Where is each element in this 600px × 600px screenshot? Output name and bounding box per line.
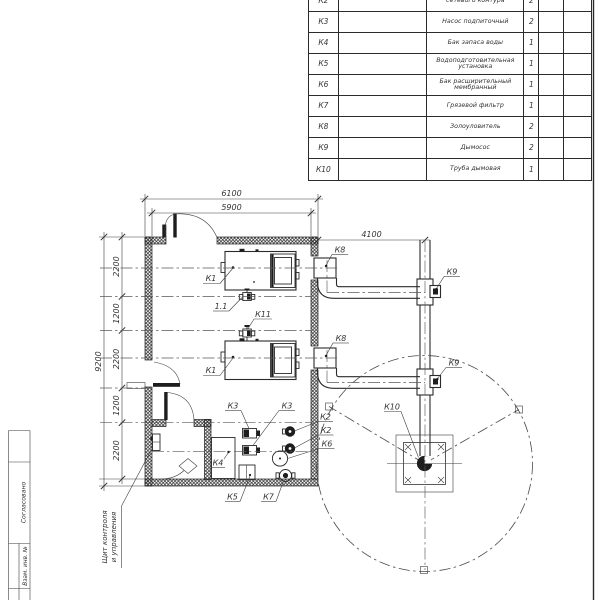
spec-qty: 2 — [524, 12, 539, 32]
spec-mass — [539, 138, 564, 158]
spec-pos: К7 — [309, 96, 339, 116]
label-k9-2: К9 — [449, 359, 460, 368]
spec-qty: 2 — [524, 0, 539, 11]
label-k6: К6 — [322, 440, 333, 449]
spec-pos: К4 — [309, 33, 339, 53]
dim-9200-text: 9200 — [94, 351, 103, 371]
label-k5: К5 — [227, 493, 238, 502]
chain-2200-a: 2200 — [112, 256, 121, 276]
spec-row-k8: К8 Золоуловитель 2 — [309, 117, 591, 138]
spec-pos: К6 — [309, 75, 339, 95]
label-k11: К11 — [255, 310, 271, 319]
spec-row-k7: К7 Грязевой фильтр 1 — [309, 96, 591, 117]
spec-pos: К2 — [309, 0, 339, 11]
spec-qty: 1 — [524, 33, 539, 53]
interior-door — [164, 392, 194, 420]
spec-mass — [539, 96, 564, 116]
spec-name: Водоподготовительная установка — [427, 54, 524, 74]
spec-qty: 1 — [524, 159, 539, 180]
label-valve-1-1: 1.1 — [215, 302, 228, 311]
spec-qty: 1 — [524, 54, 539, 74]
spec-note — [564, 0, 591, 11]
boiler-k1-1 — [221, 249, 299, 290]
spec-name: Дымосос — [427, 138, 524, 158]
spec-note — [564, 54, 591, 74]
spec-pos: К8 — [309, 117, 339, 137]
chain-2200-b: 2200 — [112, 349, 121, 369]
spec-name: Труба дымовая — [427, 159, 524, 180]
spec-note — [564, 138, 591, 158]
expansion-tank-k6 — [272, 451, 287, 466]
spec-pos: К3 — [309, 12, 339, 32]
spec-name: Насос подпиточный — [427, 12, 524, 32]
label-k9-1: К9 — [447, 268, 458, 277]
floor-drain — [161, 459, 197, 480]
spec-designation — [339, 0, 427, 11]
dim-top-outer: 6100 — [140, 189, 323, 236]
spec-name: Бак расширительный мембранный — [427, 75, 524, 95]
spec-name: Бак запаса воды — [427, 33, 524, 53]
spec-designation — [339, 12, 427, 32]
guy-anchor-3 — [421, 567, 428, 574]
spec-row-k10: К10 Труба дымовая 1 — [309, 159, 591, 180]
spec-row-k9: К9 Дымосос 2 — [309, 138, 591, 159]
spec-designation — [339, 75, 427, 95]
spec-pos: К9 — [309, 138, 339, 158]
spec-mass — [539, 117, 564, 137]
feed-pump-k3-1 — [243, 429, 261, 439]
engineering-drawing-sheet: Согласовано Взам. инв. № — [0, 0, 600, 600]
spec-mass — [539, 54, 564, 74]
stamp-agreed-text: Согласовано — [21, 482, 28, 524]
spec-designation — [339, 159, 427, 180]
spec-row-k2: К2 сетевого контура 2 — [309, 0, 591, 12]
spec-pos: К5 — [309, 54, 339, 74]
spec-mass — [539, 159, 564, 180]
spec-designation — [339, 96, 427, 116]
dim-flue-offset: 4100 — [315, 230, 430, 243]
dim-6100-text: 6100 — [221, 189, 241, 198]
smoke-exhauster-k9-1 — [430, 286, 441, 298]
chain-2200-c: 2200 — [112, 440, 121, 460]
spec-designation — [339, 54, 427, 74]
feed-pump-k3-2 — [243, 446, 261, 456]
spec-designation — [339, 138, 427, 158]
label-k10: К10 — [384, 403, 400, 412]
dim-4100-text: 4100 — [361, 230, 381, 239]
control-panel-callout: Щит контроля и управления — [101, 450, 152, 569]
label-k1-1: К1 — [206, 274, 217, 283]
spec-name: сетевого контура — [427, 0, 524, 11]
spec-name: Золоуловитель — [427, 117, 524, 137]
spec-qty: 2 — [524, 138, 539, 158]
spec-note — [564, 75, 591, 95]
exterior-step — [127, 383, 145, 389]
chain-1200-b: 1200 — [112, 395, 121, 415]
label-k4: К4 — [213, 459, 224, 468]
spec-note — [564, 159, 591, 180]
smoke-exhauster-k9-2 — [430, 376, 441, 388]
entrance-door-top — [162, 214, 217, 238]
spec-note — [564, 96, 591, 116]
spec-designation — [339, 33, 427, 53]
network-pump-k2-1 — [283, 426, 296, 436]
spec-mass — [539, 12, 564, 32]
label-k3-1: К3 — [228, 402, 239, 411]
dim-5900-text: 5900 — [221, 203, 241, 212]
spec-name: Грязевой фильтр — [427, 96, 524, 116]
spec-row-k6: К6 Бак расширительный мембранный 1 — [309, 75, 591, 96]
flue-duct-2 — [318, 368, 421, 388]
spec-row-k3: К3 Насос подпиточный 2 — [309, 12, 591, 33]
spec-qty: 1 — [524, 75, 539, 95]
spec-pos: К10 — [309, 159, 339, 180]
callout-line-1: Щит контроля — [101, 510, 109, 563]
specification-table: К2 сетевого контура 2 К3 Насос подпиточн… — [308, 0, 592, 181]
water-treatment-k5 — [239, 465, 255, 480]
spec-qty: 1 — [524, 96, 539, 116]
label-k8-2: К8 — [336, 334, 347, 343]
label-k8-1: К8 — [335, 246, 346, 255]
spec-designation — [339, 117, 427, 137]
flue-duct-1 — [318, 278, 421, 298]
interior-partition — [152, 420, 211, 480]
dim-top-inner: 5900 — [147, 203, 316, 236]
spec-row-k4: К4 Бак запаса воды 1 — [309, 33, 591, 54]
spec-note — [564, 33, 591, 53]
chimney-k10 — [387, 435, 462, 492]
label-k3-2: К3 — [282, 402, 293, 411]
label-k2-1: К2 — [320, 413, 331, 422]
label-k7: К7 — [263, 493, 275, 502]
chain-1200-a: 1200 — [112, 303, 121, 323]
spec-mass — [539, 75, 564, 95]
callout-line-2: и управления — [110, 512, 118, 562]
spec-mass — [539, 33, 564, 53]
spec-qty: 2 — [524, 117, 539, 137]
spec-note — [564, 12, 591, 32]
label-k1-2: К1 — [206, 366, 217, 375]
spec-row-k5: К5 Водоподготовительная установка 1 — [309, 54, 591, 75]
spec-mass — [539, 0, 564, 11]
side-door-left — [127, 362, 180, 389]
label-k2-2: К2 — [321, 426, 332, 435]
stamp-inv-text: Взам. инв. № — [23, 546, 29, 585]
spec-note — [564, 117, 591, 137]
